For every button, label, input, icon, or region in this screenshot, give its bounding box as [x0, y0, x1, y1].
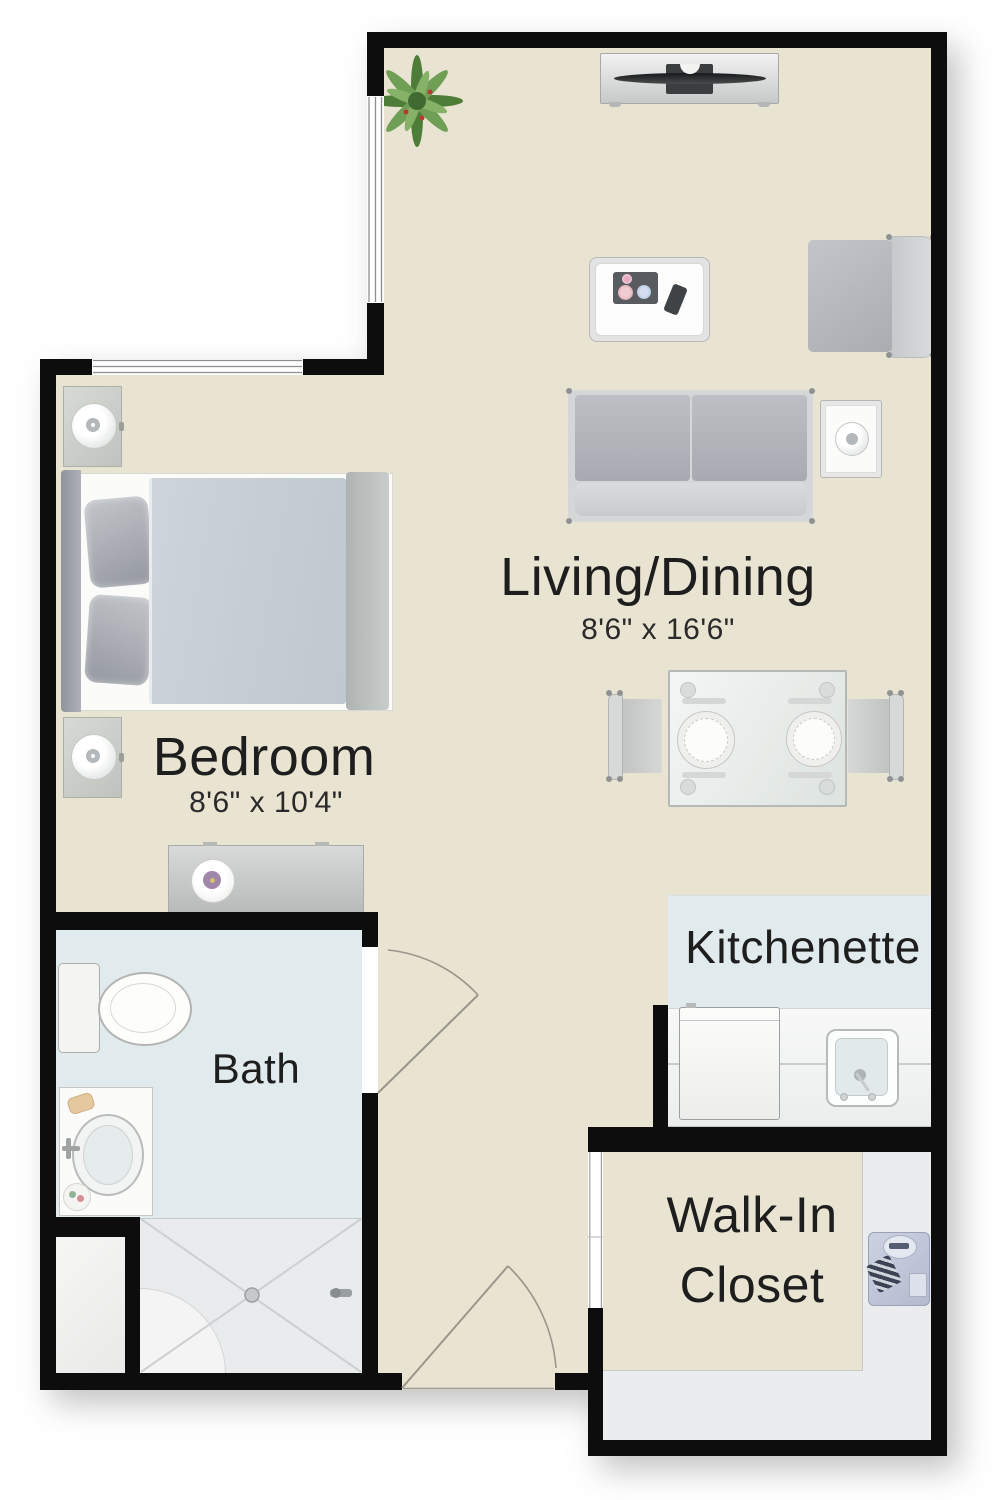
chair-post — [898, 776, 904, 782]
wall-closet-bottom — [588, 1440, 947, 1456]
decor-bowl-icon — [191, 859, 235, 903]
cutlery-icon — [788, 772, 832, 778]
wall-closet-left-lower — [588, 1308, 603, 1456]
wall-entry-right-stub — [555, 1373, 588, 1390]
armchair-seat — [808, 240, 892, 352]
living-dining-dimensions: 8'6" x 16'6" — [581, 613, 735, 647]
chair-post — [887, 776, 893, 782]
dresser-tab — [315, 842, 329, 846]
sofa-foot — [566, 518, 572, 524]
potted-plant-icon — [371, 55, 463, 147]
cutlery-icon — [682, 698, 726, 704]
table-leg — [680, 779, 696, 795]
nightstand-bottom — [63, 717, 122, 798]
window-bedroom-top — [92, 359, 303, 375]
chair-back — [889, 694, 904, 780]
sofa-foot — [566, 388, 572, 394]
chair-post — [617, 690, 623, 696]
sofa-foot — [809, 518, 815, 524]
sofa-cushion — [692, 395, 807, 481]
wall-kitchenette-closet — [588, 1127, 947, 1152]
nightstand-top — [63, 386, 122, 467]
chair-seat — [619, 699, 662, 773]
necktie-icon — [865, 1255, 902, 1294]
wall-bath-right-lower — [362, 1093, 378, 1390]
plate-center — [684, 718, 728, 762]
faucet-icon — [62, 1146, 80, 1151]
bowl-dot — [210, 878, 215, 883]
chair-post — [886, 352, 892, 358]
sofa-cushion — [575, 395, 690, 481]
living-dining-label: Living/Dining — [500, 546, 816, 608]
apartment-unit: Living/Dining 8'6" x 16'6" Bedroom 8'6" … — [0, 0, 997, 1500]
flat-tv-icon — [614, 73, 766, 84]
walk-in-closet-label-line2: Closet — [666, 1250, 837, 1320]
wall-bedroom-top-right — [303, 359, 384, 375]
chair-post — [617, 776, 623, 782]
nightstand-handle — [119, 422, 124, 431]
lamp-highlight — [91, 754, 95, 758]
soap-icon — [66, 1091, 96, 1115]
chair-seat — [848, 699, 891, 773]
table-leg — [819, 682, 835, 698]
hallway-floor-upper — [378, 895, 668, 1127]
toilet-icon — [58, 963, 188, 1053]
chair-post — [606, 776, 612, 782]
faucet-icon — [66, 1138, 71, 1159]
accessory-dish-icon — [63, 1183, 91, 1211]
linen-closet-floor — [56, 1237, 125, 1373]
table-leg — [819, 779, 835, 795]
dining-table — [668, 670, 847, 807]
dinner-plate-icon — [786, 711, 842, 767]
coffee-table — [589, 257, 710, 342]
nightstand-handle — [119, 753, 124, 762]
walk-in-closet-label: Walk-In Closet — [666, 1180, 837, 1320]
cup-icon — [637, 285, 651, 299]
wall-kitchenette-left — [653, 1005, 668, 1127]
wall-living-left-upper — [367, 48, 384, 96]
wall-top — [367, 32, 947, 48]
floor-plan: Living/Dining 8'6" x 16'6" Bedroom 8'6" … — [0, 0, 997, 1500]
vanity-sink-icon — [59, 1087, 153, 1216]
table-leg — [680, 682, 696, 698]
wall-bottom-left — [40, 1373, 402, 1390]
comforter-icon — [149, 478, 346, 704]
accessory-dot — [69, 1191, 76, 1198]
armchair-back — [890, 236, 936, 358]
folded-shirt-icon — [868, 1232, 930, 1306]
window-mullions — [93, 97, 382, 373]
console-foot — [609, 102, 621, 107]
kitchenette-label: Kitchenette — [685, 920, 921, 974]
sofa-seat-edge — [575, 483, 807, 516]
refrigerator-icon — [679, 1007, 780, 1120]
bath-label: Bath — [212, 1045, 300, 1093]
toilet-bowl — [98, 972, 192, 1046]
lamp-highlight — [91, 423, 95, 427]
accessory-dot — [77, 1195, 84, 1202]
closet-door-opening — [588, 1152, 603, 1308]
plate-center — [793, 718, 835, 760]
bath-door-opening — [362, 947, 378, 1093]
chair-post — [898, 690, 904, 696]
tv-console — [600, 53, 779, 104]
fridge-seam — [680, 1020, 779, 1021]
hallway-floor-lower — [378, 1127, 588, 1390]
bedroom-label: Bedroom — [153, 726, 376, 788]
wall-bath-right-upper — [362, 930, 378, 947]
loveseat-sofa-icon — [568, 390, 813, 522]
shirt-cuff — [909, 1273, 927, 1297]
wall-right — [931, 32, 947, 1456]
side-table — [820, 400, 882, 478]
cup-icon — [618, 285, 633, 300]
pillow-icon — [84, 594, 154, 686]
flower-icon — [622, 274, 632, 284]
chair-post — [887, 690, 893, 696]
chair-post — [606, 690, 612, 696]
wall-linen-closet-h — [40, 1217, 140, 1237]
sink-basin — [835, 1038, 888, 1096]
entry-door-opening — [402, 1373, 555, 1390]
dresser-tab — [203, 842, 217, 846]
lamp-finial — [846, 433, 858, 445]
table-lamp-icon — [71, 734, 117, 780]
walk-in-closet-label-line1: Walk-In — [666, 1180, 837, 1250]
bed — [61, 470, 392, 712]
console-foot — [758, 102, 770, 107]
sink-basin-inner — [83, 1125, 133, 1185]
collar-band — [889, 1243, 909, 1249]
headboard — [61, 470, 81, 712]
dinner-plate-icon — [677, 711, 735, 769]
cutlery-icon — [682, 772, 726, 778]
armchair — [806, 236, 934, 356]
serving-tray-icon — [613, 272, 658, 304]
dresser — [168, 845, 364, 915]
sink-knob — [840, 1093, 848, 1101]
toilet-bowl-inner — [110, 983, 176, 1033]
sofa-foot — [809, 388, 815, 394]
table-lamp-icon — [71, 403, 117, 449]
foot-bench — [346, 472, 389, 710]
dining-chair — [848, 692, 902, 780]
kitchen-sink-icon — [826, 1029, 899, 1107]
sink-knob — [868, 1093, 876, 1101]
wall-bedroom-bath — [40, 912, 378, 930]
cutlery-icon — [788, 698, 832, 704]
dining-chair — [608, 692, 662, 780]
chair-back — [608, 694, 623, 780]
wall-linen-closet-v — [125, 1237, 140, 1373]
bedroom-dimensions: 8'6" x 10'4" — [189, 786, 343, 820]
fridge-hinge — [686, 1003, 696, 1008]
chair-post — [886, 234, 892, 240]
pillow-icon — [83, 495, 154, 588]
window-living-left — [367, 96, 384, 303]
toilet-tank — [58, 963, 100, 1053]
table-lamp-icon — [835, 422, 869, 456]
